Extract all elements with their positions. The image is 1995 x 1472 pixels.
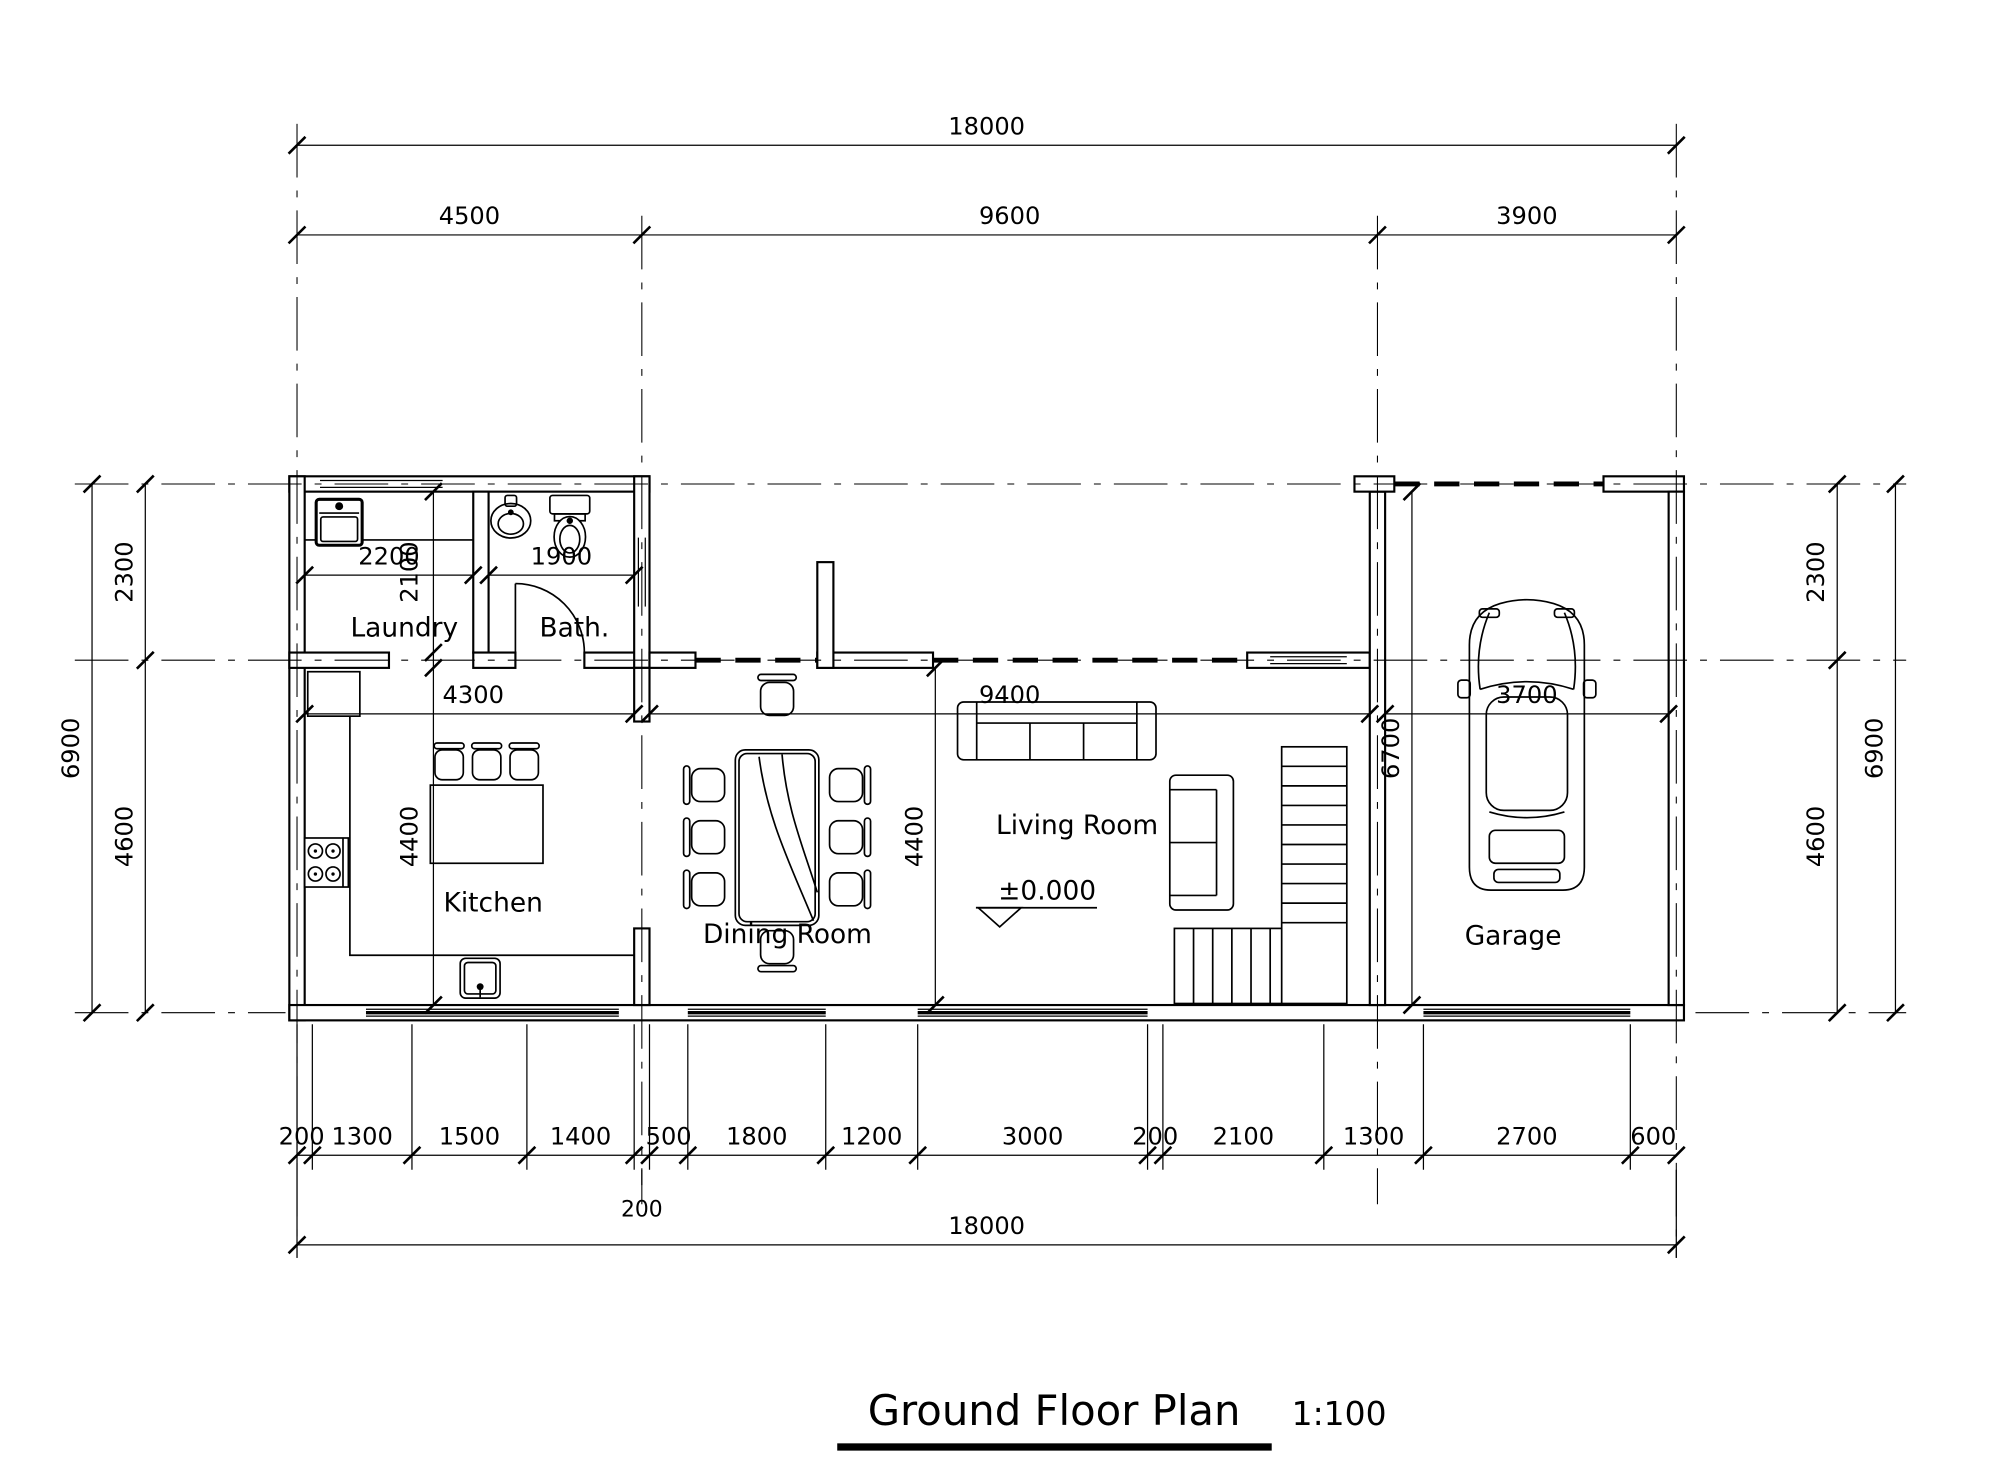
level-value: ±0.000 bbox=[998, 875, 1096, 906]
dim-left-2300: 2300 bbox=[110, 541, 138, 602]
room-label-dining: Dining Room bbox=[703, 919, 872, 950]
dim-bath-width: 1900 bbox=[531, 542, 592, 570]
kitchen-island bbox=[430, 785, 543, 863]
drawing-sheet: ±0.000 18000 4500 9600 3900 200 1300 150… bbox=[0, 0, 1995, 1472]
dim-bottom-chain-8: 3000 bbox=[1002, 1122, 1063, 1150]
stove bbox=[305, 838, 349, 887]
room-label-living: Living Room bbox=[996, 810, 1158, 841]
dim-garage-height: 6700 bbox=[1377, 718, 1405, 779]
dim-bottom-chain-12: 2700 bbox=[1496, 1122, 1557, 1150]
level-marker: ±0.000 bbox=[976, 875, 1097, 927]
sofa bbox=[958, 702, 1156, 760]
dim-right-2300: 2300 bbox=[1802, 541, 1830, 602]
dim-laundry-height: 2100 bbox=[395, 541, 423, 602]
dim-garage-width: 3700 bbox=[1496, 681, 1557, 709]
dim-top-3900: 3900 bbox=[1496, 202, 1557, 230]
dim-kitchen-width: 4300 bbox=[443, 681, 504, 709]
dim-bottom-overall: 18000 bbox=[948, 1212, 1025, 1240]
car bbox=[1458, 600, 1596, 890]
dim-right-4600: 4600 bbox=[1802, 806, 1830, 867]
dim-bottom-chain-4: 200 bbox=[621, 1198, 663, 1223]
dining-table bbox=[735, 750, 819, 925]
drawing-title: Ground Floor Plan bbox=[868, 1386, 1241, 1435]
dim-top-4500: 4500 bbox=[439, 202, 500, 230]
dim-left-4600: 4600 bbox=[110, 806, 138, 867]
dim-bottom-chain-2: 1500 bbox=[439, 1122, 500, 1150]
dim-bottom-chain-6: 1800 bbox=[726, 1122, 787, 1150]
dim-top-9600: 9600 bbox=[979, 202, 1040, 230]
dim-bottom-chain-13: 600 bbox=[1630, 1122, 1676, 1150]
dim-top-overall: 18000 bbox=[948, 113, 1025, 141]
dim-bottom-chain-11: 1300 bbox=[1343, 1122, 1404, 1150]
kitchen-sink bbox=[460, 958, 500, 998]
dim-bottom-chain-5: 500 bbox=[646, 1122, 692, 1150]
drawing-scale: 1:100 bbox=[1292, 1394, 1387, 1433]
living-furniture bbox=[958, 702, 1347, 1004]
dim-kitchen-height: 4400 bbox=[395, 806, 423, 867]
laundry-fixtures bbox=[305, 499, 474, 545]
island-stools bbox=[434, 743, 539, 780]
dim-bottom-chain-3: 1400 bbox=[550, 1122, 611, 1150]
room-label-laundry: Laundry bbox=[350, 612, 458, 643]
floor-plan: ±0.000 18000 4500 9600 3900 200 1300 150… bbox=[0, 0, 1995, 1472]
dim-bottom-chain-7: 1200 bbox=[841, 1122, 902, 1150]
labels: 18000 4500 9600 3900 200 1300 1500 1400 … bbox=[57, 113, 1888, 1241]
fridge bbox=[308, 672, 360, 716]
dim-left-6900: 6900 bbox=[57, 718, 85, 779]
bath-sink bbox=[491, 495, 531, 538]
armchair bbox=[1170, 775, 1234, 910]
dim-bottom-chain-9: 200 bbox=[1132, 1122, 1178, 1150]
dim-bottom-chain-0: 200 bbox=[279, 1122, 325, 1150]
dim-bottom-chain-10: 2100 bbox=[1213, 1122, 1274, 1150]
room-label-garage: Garage bbox=[1465, 921, 1562, 952]
dim-dining-height: 4400 bbox=[900, 806, 928, 867]
room-label-bath: Bath. bbox=[539, 612, 609, 643]
kitchen-fixtures bbox=[305, 672, 634, 998]
dim-dining-living-width: 9400 bbox=[979, 681, 1040, 709]
title-block: Ground Floor Plan 1:100 bbox=[837, 1386, 1386, 1451]
washing-machine bbox=[316, 499, 362, 545]
room-label-kitchen: Kitchen bbox=[444, 888, 543, 919]
dim-bottom-chain-1: 1300 bbox=[331, 1122, 392, 1150]
dim-right-6900: 6900 bbox=[1860, 718, 1888, 779]
title-underline bbox=[837, 1443, 1271, 1450]
